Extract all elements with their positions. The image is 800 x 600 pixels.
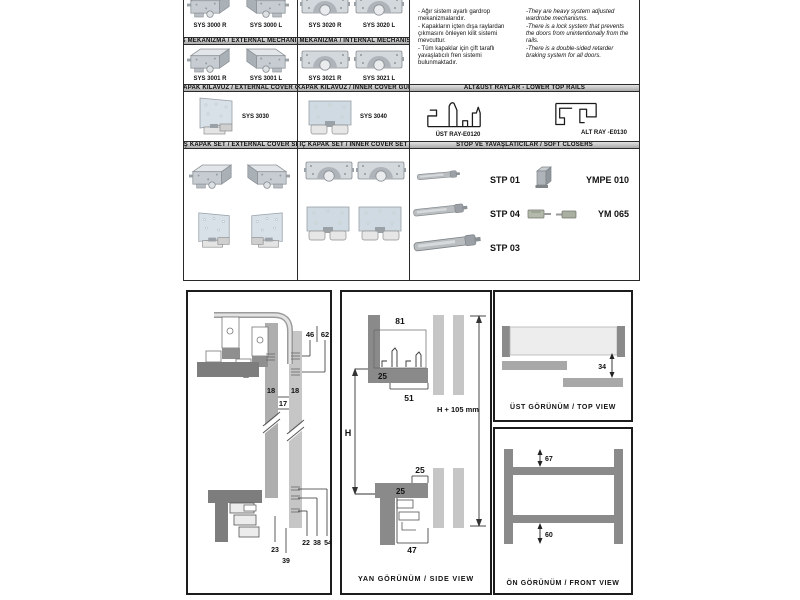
description-english: -They are heavy system adjusted wardrobe… xyxy=(526,9,634,61)
dim-23: 23 xyxy=(271,547,279,554)
description-line: - Kapakların içten dışa raylardan çıkmas… xyxy=(418,24,520,45)
internal-mechanism-r-image xyxy=(300,0,350,17)
rail-label: ÜST RAY-E0120 xyxy=(418,132,498,138)
internal-mechanism-l-image xyxy=(354,0,404,17)
ympe010-image xyxy=(534,165,554,189)
external-mechanism-r-image xyxy=(189,163,235,190)
dim-25-door: 25 xyxy=(415,465,425,475)
inner-guide-plate-image xyxy=(304,205,352,243)
dim-54: 54 xyxy=(324,540,332,547)
soft-closer-stp04-image xyxy=(412,201,470,221)
panel-top-view: 34 ÜST GÖRÜNÜM / TOP VIEW xyxy=(493,290,633,422)
dim-51: 51 xyxy=(404,393,414,403)
external-mechanism-l-image xyxy=(244,163,290,190)
ym065-image xyxy=(526,207,578,221)
dim-25-top-track: 25 xyxy=(378,372,387,381)
panel-side-detail: 46 62 18 18 17 xyxy=(186,290,332,595)
catalog-sheet: SYS 3000 R SYS 3000 L SYS 3020 R SYS 302… xyxy=(0,0,800,600)
description-turkish: - Ağır sistem ayarlı gardrop mekanizmala… xyxy=(418,9,520,68)
internal-mechanism-l-image xyxy=(356,161,406,183)
description-line: -They are heavy system adjusted wardrobe… xyxy=(526,9,634,23)
product-label: SYS 3020 R xyxy=(299,23,351,29)
top-view-caption: ÜST GÖRÜNÜM / TOP VIEW xyxy=(510,402,616,411)
closer-label: YMPE 010 xyxy=(586,175,629,185)
dim-47: 47 xyxy=(407,545,417,555)
description-line: -There is a double-sided retarder brakin… xyxy=(526,46,634,60)
dim-67: 67 xyxy=(545,456,553,463)
product-label: SYS 3040 xyxy=(360,114,387,120)
closer-label: YM 065 xyxy=(598,209,629,219)
dim-17: 17 xyxy=(279,399,287,408)
cell-internal-mechanism: SYS 3020 R SYS 3020 L xyxy=(297,0,410,38)
product-label: SYS 3021 L xyxy=(353,76,405,82)
cell-inner-cover-set xyxy=(297,148,410,281)
description-line: - Ağır sistem ayarlı gardrop mekanizmala… xyxy=(418,9,520,23)
product-sys3021l: SYS 3021 L xyxy=(353,50,405,85)
dim-46: 46 xyxy=(306,330,314,339)
dim-34: 34 xyxy=(598,364,606,371)
dim-h105: H + 105 mm xyxy=(437,405,479,414)
product-sys3020l: SYS 3020 L xyxy=(353,0,405,37)
product-sys3000l: SYS 3000 L xyxy=(240,0,292,38)
side-detail-drawing: 46 62 18 18 17 xyxy=(186,290,332,595)
external-mechanism-l-image xyxy=(243,47,289,74)
inner-guide-plate-image xyxy=(356,205,404,243)
product-sys3000r: SYS 3000 R xyxy=(184,0,236,38)
dim-60: 60 xyxy=(545,532,553,539)
product-sys3001l: SYS 3001 L xyxy=(240,47,292,85)
front-view-caption: ÖN GÖRÜNÜM / FRONT VIEW xyxy=(507,578,620,587)
product-label: SYS 3000 R xyxy=(184,23,236,29)
internal-mechanism-l-image xyxy=(354,50,404,72)
soft-closer-stp03-image xyxy=(412,231,484,257)
cell-rails: ÜST RAY-E0120 ALT RAY -E0130 xyxy=(409,91,640,142)
internal-mechanism-r-image xyxy=(304,161,354,183)
cell-external-mechanism: SYS 3000 R SYS 3000 L xyxy=(183,0,298,38)
product-table: SYS 3000 R SYS 3000 L SYS 3020 R SYS 302… xyxy=(183,0,640,281)
front-view-drawing: 67 60 ÖN GÖRÜNÜM / FRONT VIEW xyxy=(493,427,633,595)
external-mechanism-r-image xyxy=(187,47,233,74)
dim-81: 81 xyxy=(395,316,405,326)
external-mechanism-r-image xyxy=(187,0,233,19)
panel-side-view: 25 81 51 H + 1 xyxy=(340,290,492,595)
upper-rail-profile-image xyxy=(422,96,486,132)
cell-sys3040: SYS 3040 xyxy=(297,91,410,142)
top-view-drawing: 34 ÜST GÖRÜNÜM / TOP VIEW xyxy=(493,290,633,422)
dim-h: H xyxy=(345,428,352,438)
inner-guide-plate-image xyxy=(306,99,354,137)
cover-guide-bracket-image xyxy=(193,211,235,251)
side-view-caption: YAN GÖRÜNÜM / SIDE VIEW xyxy=(358,574,474,583)
dim-25-bottom-track: 25 xyxy=(396,487,405,496)
cell-external-cover-set xyxy=(183,148,298,281)
cell-inner-cover-guide-products: SYS 3021 R SYS 3021 L xyxy=(297,44,410,85)
closer-label: STP 04 xyxy=(490,209,520,219)
product-label: SYS 3020 L xyxy=(353,23,405,29)
cell-description: - Ağır sistem ayarlı gardrop mekanizmala… xyxy=(409,0,640,85)
dim-18-right: 18 xyxy=(291,386,299,395)
dim-22: 22 xyxy=(302,540,310,547)
cover-guide-bracket-image xyxy=(194,96,238,138)
dim-38: 38 xyxy=(313,540,321,547)
product-label: SYS 3001 R xyxy=(184,76,236,82)
dim-18-left: 18 xyxy=(267,386,275,395)
lower-rail-profile-image xyxy=(552,97,600,131)
product-label: SYS 3030 xyxy=(242,114,269,120)
closer-label: STP 01 xyxy=(490,175,520,185)
external-mechanism-l-image xyxy=(243,0,289,19)
cell-soft-closers: STP 01 YMPE 010 STP 04 YM 065 STP 03 xyxy=(409,148,640,281)
cover-guide-bracket-image xyxy=(246,211,288,251)
side-view-drawing: 25 81 51 H + 1 xyxy=(340,290,492,595)
product-sys3021r: SYS 3021 R xyxy=(299,50,351,85)
rail-label: ALT RAY -E0130 xyxy=(564,130,640,136)
cell-external-cover-guide-products: SYS 3001 R SYS 3001 L xyxy=(183,44,298,85)
description-line: - Tüm kapaklar için çift taraflı yavaşla… xyxy=(418,46,520,67)
product-label: SYS 3001 L xyxy=(240,76,292,82)
cell-sys3030: SYS 3030 xyxy=(183,91,298,142)
panel-front-view: 67 60 ÖN GÖRÜNÜM / FRONT VIEW xyxy=(493,427,633,595)
product-sys3020r: SYS 3020 R xyxy=(299,0,351,37)
product-sys3001r: SYS 3001 R xyxy=(184,47,236,85)
closer-label: STP 03 xyxy=(490,243,520,253)
product-label: SYS 3021 R xyxy=(299,76,351,82)
product-label: SYS 3000 L xyxy=(240,23,292,29)
dim-39: 39 xyxy=(282,558,290,565)
internal-mechanism-r-image xyxy=(300,50,350,72)
dim-62: 62 xyxy=(321,330,329,339)
description-line: -There is a lock system that prevents th… xyxy=(526,24,634,45)
soft-closer-stp01-image xyxy=(416,167,462,185)
